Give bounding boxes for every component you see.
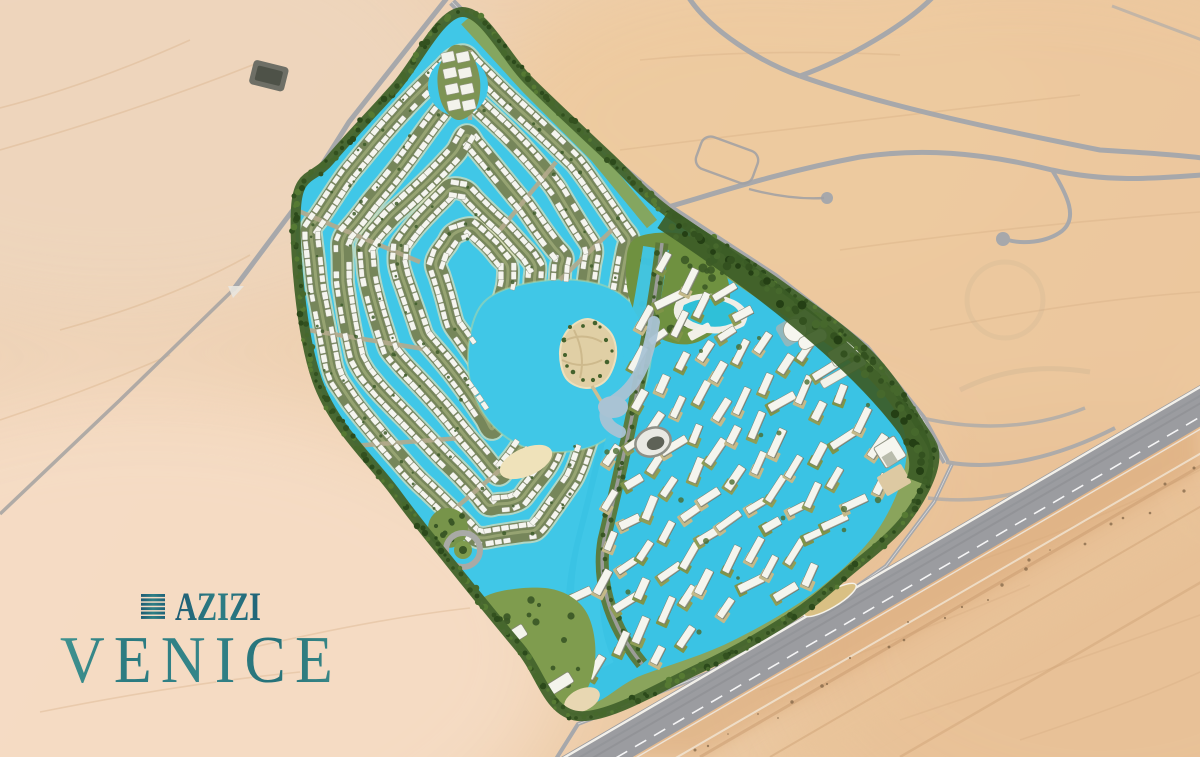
- svg-text:VENICE: VENICE: [60, 623, 342, 697]
